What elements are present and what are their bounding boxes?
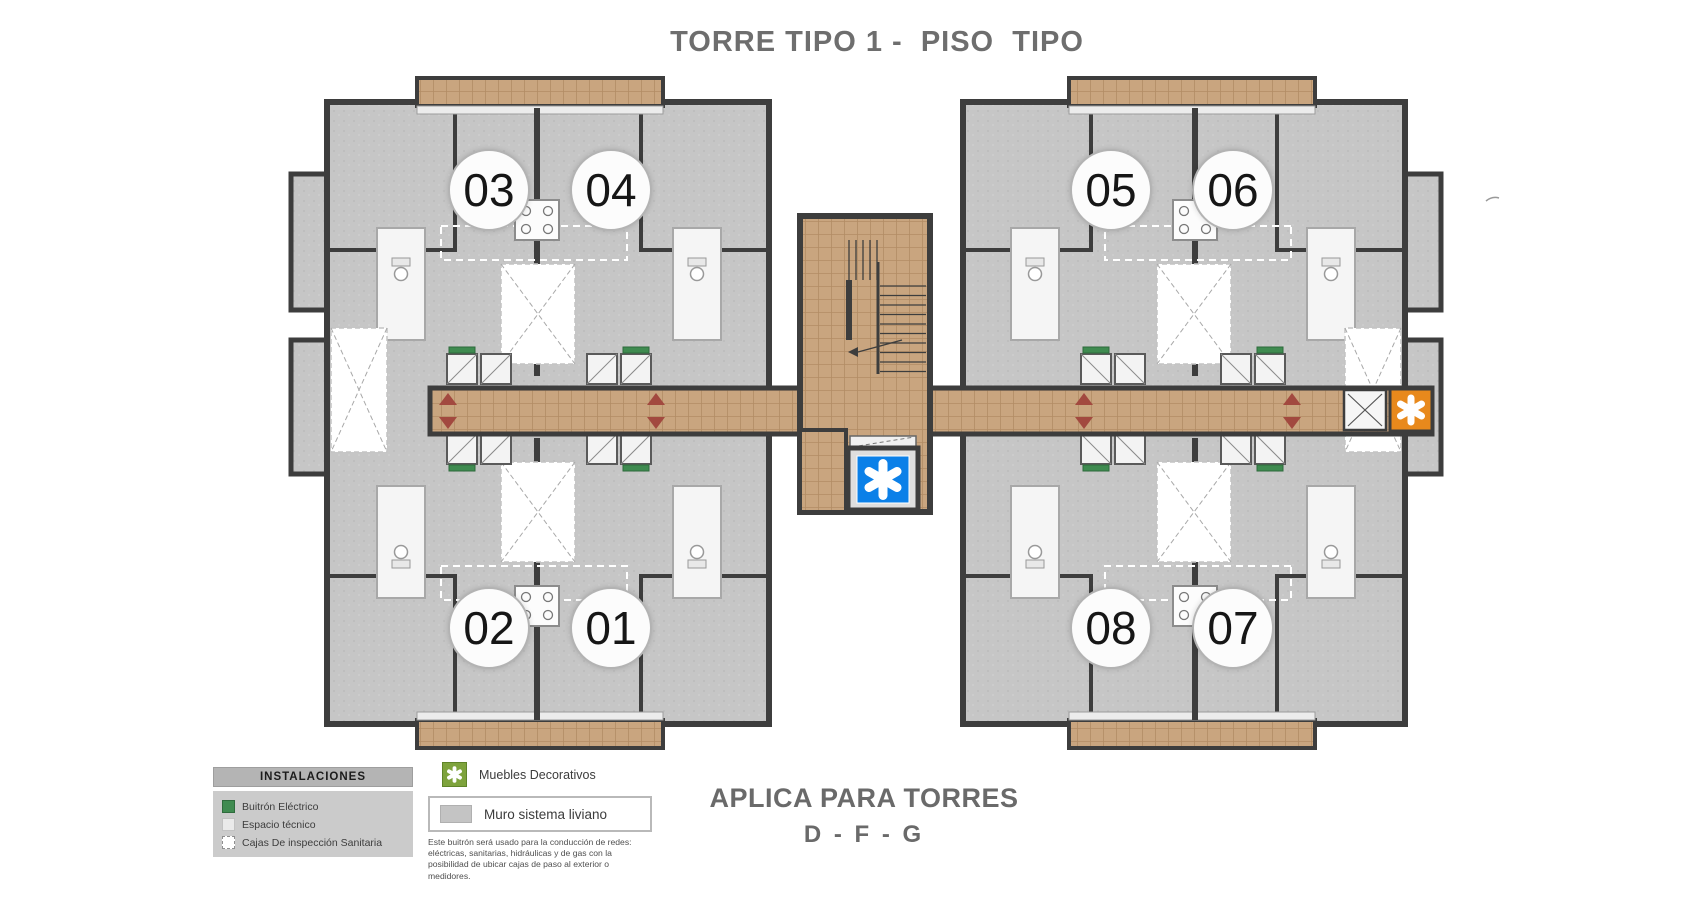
legend-panel: Buitrón Eléctrico Espacio técnico Cajas …: [213, 791, 413, 857]
legend-instalaciones: INSTALACIONES Buitrón Eléctrico Espacio …: [213, 767, 413, 857]
muro-swatch: [440, 805, 472, 823]
legend-item-muro: Muro sistema liviano: [428, 796, 652, 832]
unit-badge-06: 06: [1192, 149, 1274, 231]
elevator-shaft: [800, 430, 918, 512]
unit-badge-01: 01: [570, 587, 652, 669]
footer-line2: D - F - G: [709, 821, 1018, 849]
muebles-asterisk-icon: [442, 762, 467, 787]
unit-badge-05: 05: [1070, 149, 1152, 231]
footer-line1: APLICA PARA TORRES: [709, 783, 1018, 814]
page-title: TORRE TIPO 1 - PISO TIPO: [670, 26, 1084, 59]
muebles-label: Muebles Decorativos: [479, 768, 596, 782]
unit-badge-08: 08: [1070, 587, 1152, 669]
unit-badge-02: 02: [448, 587, 530, 669]
espacio-swatch: [222, 818, 235, 831]
unit-badge-07: 07: [1192, 587, 1274, 669]
legend-item-cajas: Cajas De inspección Sanitaria: [222, 836, 404, 849]
muro-label: Muro sistema liviano: [484, 807, 607, 822]
stray-mark: [1486, 197, 1499, 201]
legend-item-buitron: Buitrón Eléctrico: [222, 800, 404, 813]
buitron-swatch: [222, 800, 235, 813]
legend-item-label: Buitrón Eléctrico: [242, 801, 318, 813]
legend-item-label: Cajas De inspección Sanitaria: [242, 837, 382, 849]
cajas-swatch: [222, 836, 235, 849]
floor-plan-page: { "title": "TORRE TIPO 1 - PISO TIPO", "…: [0, 0, 1701, 900]
legend-item-espacio: Espacio técnico: [222, 818, 404, 831]
legend-item-muebles: Muebles Decorativos: [442, 762, 652, 787]
legend-header: INSTALACIONES: [213, 767, 413, 787]
buitron-note: Este buitrón será usado para la conducci…: [428, 837, 646, 882]
unit-badge-03: 03: [448, 149, 530, 231]
footer-note: APLICA PARA TORRES D - F - G: [709, 783, 1018, 849]
unit-badge-04: 04: [570, 149, 652, 231]
legend-item-label: Espacio técnico: [242, 819, 316, 831]
legend-symbols: Muebles Decorativos Muro sistema liviano…: [428, 762, 652, 882]
floor-plan-drawing: [0, 0, 1701, 900]
